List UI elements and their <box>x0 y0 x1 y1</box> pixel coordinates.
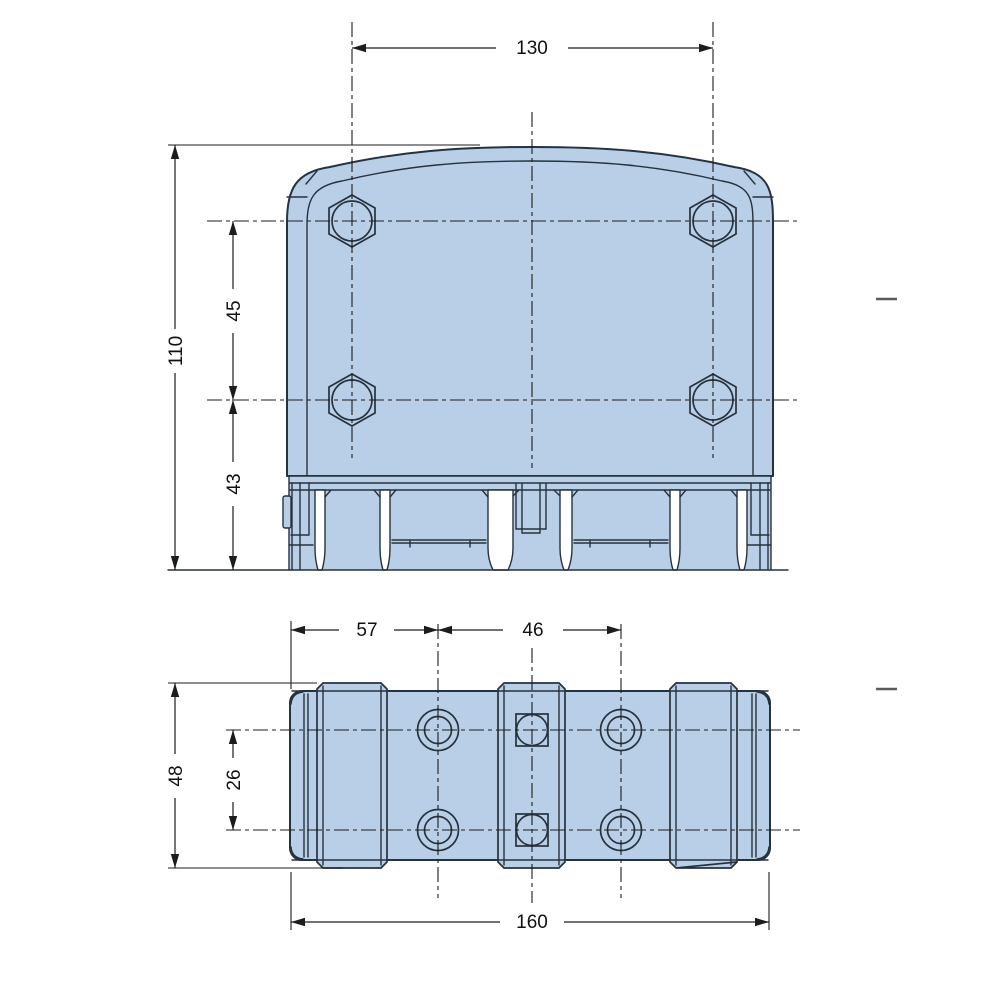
dim-160-label: 160 <box>516 912 548 933</box>
arrow-down-icon <box>171 556 179 570</box>
front-base <box>168 476 788 570</box>
dim-130: 130 <box>352 38 713 59</box>
dim-45-label: 45 <box>224 300 245 321</box>
boss-right <box>670 683 737 868</box>
drawing-canvas: 130 110 45 43 <box>0 0 1001 1001</box>
dim-43: 43 <box>224 400 245 570</box>
dim-26-label: 26 <box>224 769 245 790</box>
reference-marks <box>876 299 897 689</box>
arrow-right-icon <box>424 626 438 634</box>
base-slot-6 <box>737 490 747 570</box>
arrow-up-icon <box>171 145 179 159</box>
dimension-drawing: 130 110 45 43 <box>0 0 1001 1001</box>
bottom-view <box>226 624 800 903</box>
arrow-up-icon <box>171 683 179 697</box>
arrow-up-icon <box>229 221 237 235</box>
arrow-up-icon <box>229 400 237 414</box>
dim-57-label: 57 <box>356 620 377 641</box>
dim-45: 45 <box>224 221 245 400</box>
base-slot-4 <box>560 490 572 570</box>
dim-46: 46 <box>438 620 621 641</box>
arrow-right-icon <box>755 918 769 926</box>
dim-110-label: 110 <box>166 336 187 366</box>
front-view <box>168 22 797 570</box>
arrow-down-icon <box>171 854 179 868</box>
dim-160: 160 <box>291 872 769 933</box>
base-slot-1 <box>315 490 325 570</box>
arrow-right-icon <box>607 626 621 634</box>
dim-46-label: 46 <box>522 620 543 641</box>
dim-26: 26 <box>224 730 245 830</box>
left-side-tab <box>283 496 291 528</box>
dim-48-label: 48 <box>166 765 187 786</box>
base-slot-5 <box>670 490 680 570</box>
arrow-right-icon <box>699 44 713 52</box>
dim-43-label: 43 <box>224 473 245 494</box>
base-slot-2 <box>380 490 390 570</box>
dim-130-label: 130 <box>516 38 548 59</box>
arrow-left-icon <box>438 626 452 634</box>
arrow-down-icon <box>229 556 237 570</box>
dim-57: 57 <box>291 620 438 689</box>
arrow-down-icon <box>229 386 237 400</box>
arrow-left-icon <box>291 626 305 634</box>
arrow-up-icon <box>229 730 237 744</box>
front-body-outline <box>287 147 773 476</box>
arrow-left-icon <box>291 918 305 926</box>
arrow-down-icon <box>229 816 237 830</box>
boss-left <box>317 683 387 868</box>
base-slot-3 <box>488 490 513 570</box>
arrow-left-icon <box>352 44 366 52</box>
